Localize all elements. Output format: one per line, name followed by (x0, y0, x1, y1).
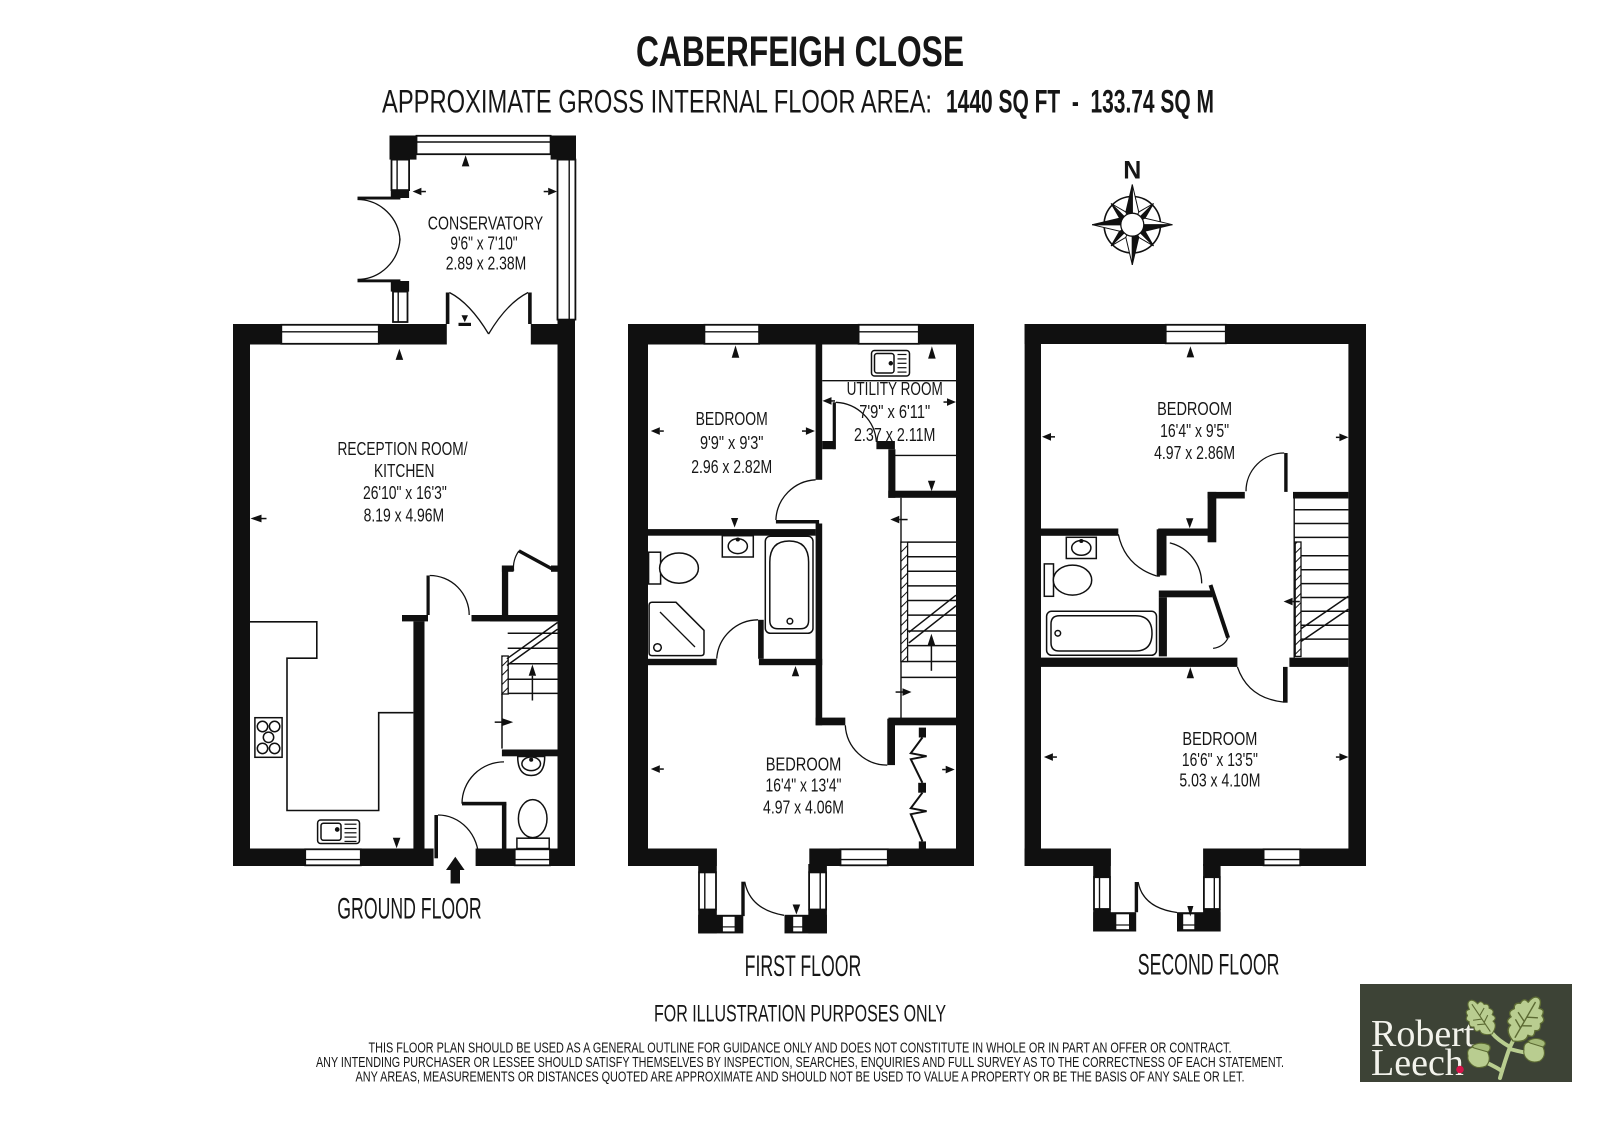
svg-text:RECEPTION ROOM/: RECEPTION ROOM/ (338, 439, 469, 459)
svg-text:9'9" x 9'3": 9'9" x 9'3" (700, 433, 764, 453)
svg-text:FIRST FLOOR: FIRST FLOOR (745, 951, 862, 983)
svg-text:UTILITY ROOM: UTILITY ROOM (847, 379, 943, 399)
svg-text:BEDROOM: BEDROOM (696, 409, 768, 429)
svg-text:7'9" x 6'11": 7'9" x 6'11" (859, 402, 930, 422)
svg-text:16'4" x 13'4": 16'4" x 13'4" (766, 776, 842, 796)
svg-text:8.19 x 4.96M: 8.19 x 4.96M (364, 506, 445, 526)
svg-text:N: N (1123, 157, 1141, 185)
svg-text:KITCHEN: KITCHEN (374, 461, 435, 481)
svg-text:APPROXIMATE GROSS INTERNAL FLO: APPROXIMATE GROSS INTERNAL FLOOR AREA: (382, 84, 932, 120)
svg-text:2.37 x 2.11M: 2.37 x 2.11M (854, 425, 935, 445)
svg-text:CABERFEIGH CLOSE: CABERFEIGH CLOSE (636, 28, 964, 76)
svg-text:16'4" x 9'5": 16'4" x 9'5" (1160, 421, 1229, 441)
svg-text:FOR ILLUSTRATION PURPOSES ONLY: FOR ILLUSTRATION PURPOSES ONLY (654, 1002, 946, 1028)
svg-text:16'6" x 13'5": 16'6" x 13'5" (1182, 750, 1258, 770)
svg-text:2.89 x 2.38M: 2.89 x 2.38M (446, 254, 527, 274)
svg-text:Leech: Leech (1371, 1042, 1464, 1084)
svg-text:4.97 x 4.06M: 4.97 x 4.06M (763, 798, 844, 818)
svg-text:5.03 x 4.10M: 5.03 x 4.10M (1179, 770, 1260, 790)
svg-text:SECOND FLOOR: SECOND FLOOR (1138, 949, 1280, 981)
svg-text:ANY AREAS, MEASUREMENTS OR DIS: ANY AREAS, MEASUREMENTS OR DISTANCES QUO… (356, 1070, 1245, 1086)
svg-text:GROUND FLOOR: GROUND FLOOR (337, 894, 481, 926)
svg-text:2.96 x 2.82M: 2.96 x 2.82M (691, 457, 772, 477)
svg-text:BEDROOM: BEDROOM (1157, 399, 1232, 419)
svg-text:CONSERVATORY: CONSERVATORY (428, 214, 543, 234)
svg-text:9'6" x 7'10": 9'6" x 7'10" (450, 234, 517, 254)
svg-text:BEDROOM: BEDROOM (766, 754, 842, 774)
svg-text:1440 SQ FT - 133.74 SQ M: 1440 SQ FT - 133.74 SQ M (946, 84, 1214, 120)
svg-text:4.97 x 2.86M: 4.97 x 2.86M (1154, 443, 1235, 463)
svg-text:BEDROOM: BEDROOM (1182, 729, 1257, 749)
svg-text:26'10" x 16'3": 26'10" x 16'3" (363, 483, 447, 503)
